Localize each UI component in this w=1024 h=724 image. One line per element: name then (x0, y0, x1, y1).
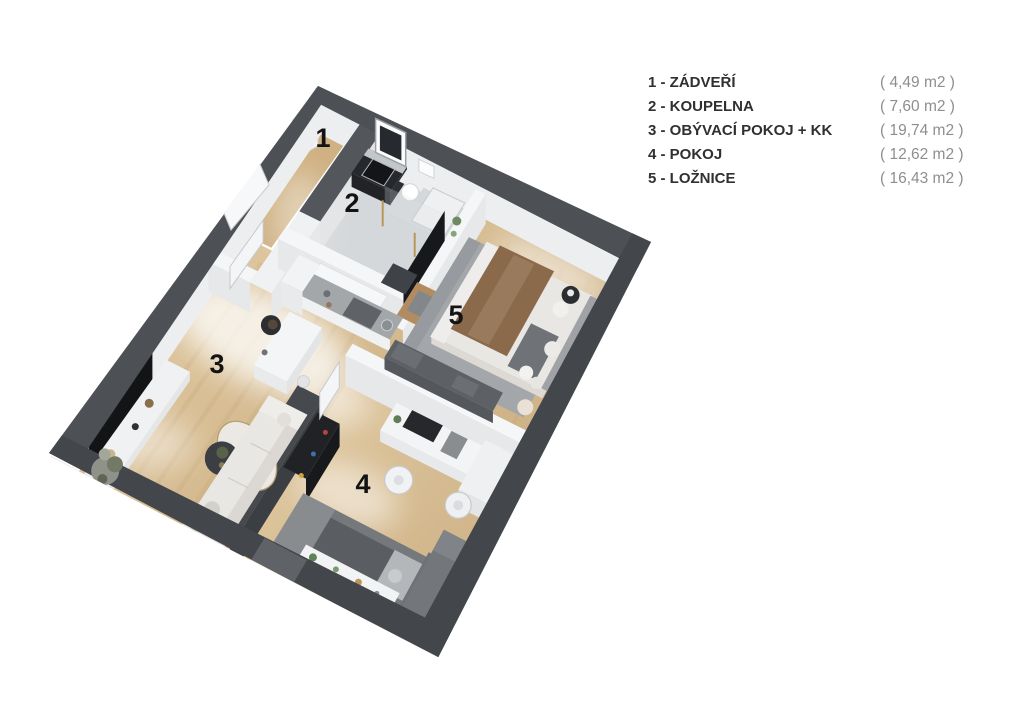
svg-text:5: 5 (448, 300, 463, 330)
svg-text:4 - POKOJ: 4 - POKOJ (648, 146, 722, 163)
svg-text:5 - LOŽNICE: 5 - LOŽNICE (648, 169, 736, 187)
svg-text:2 - KOUPELNA: 2 - KOUPELNA (648, 98, 754, 115)
svg-text:( 7,60 m2 ): ( 7,60 m2 ) (880, 98, 955, 115)
svg-text:3 - OBÝVACÍ POKOJ + KK: 3 - OBÝVACÍ POKOJ + KK (648, 121, 833, 139)
svg-text:1: 1 (315, 123, 330, 153)
svg-text:3: 3 (209, 349, 224, 379)
svg-text:2: 2 (344, 188, 359, 218)
svg-text:( 4,49 m2 ): ( 4,49 m2 ) (880, 74, 955, 91)
svg-text:( 19,74 m2 ): ( 19,74 m2 ) (880, 122, 964, 139)
svg-text:( 16,43 m2 ): ( 16,43 m2 ) (880, 170, 964, 187)
svg-text:1 - ZÁDVEŘÍ: 1 - ZÁDVEŘÍ (648, 73, 736, 91)
svg-text:4: 4 (355, 469, 370, 499)
svg-text:( 12,62 m2 ): ( 12,62 m2 ) (880, 146, 964, 163)
